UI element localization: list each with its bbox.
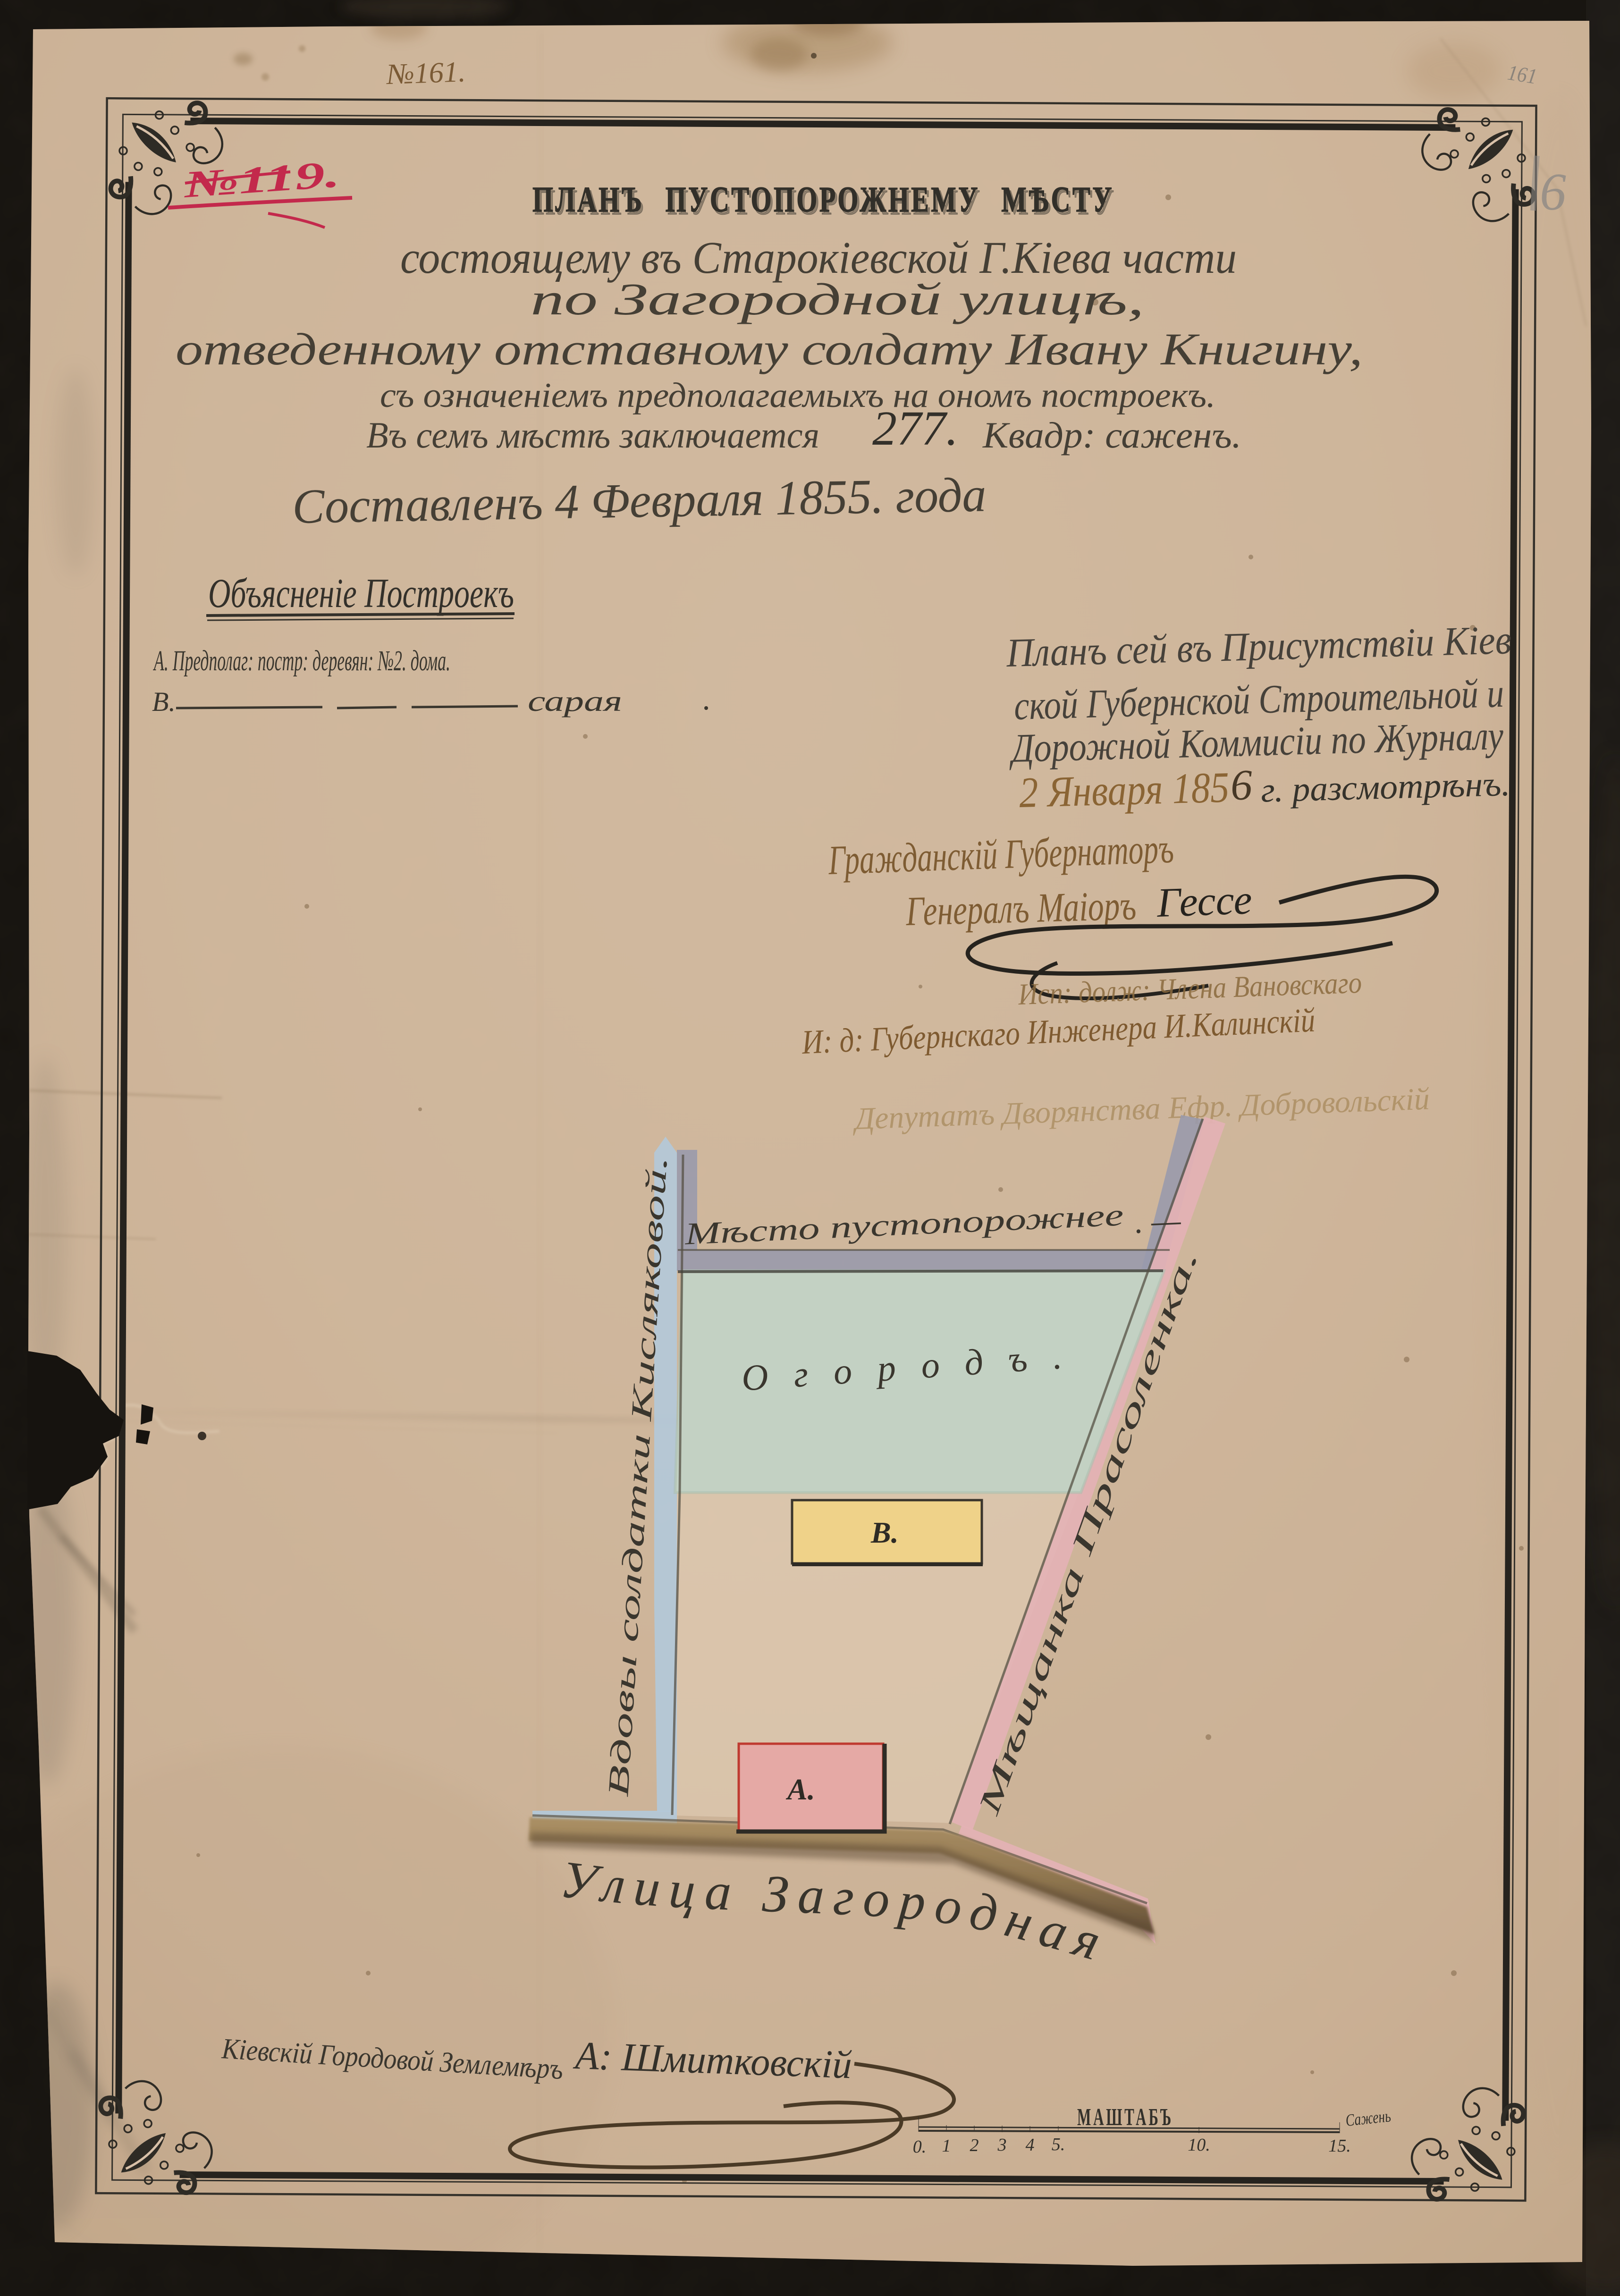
svg-text:1: 1 xyxy=(942,2136,951,2156)
svg-text:Квадр: саженъ.: Квадр: саженъ. xyxy=(982,414,1241,456)
svg-text:2 Января 185: 2 Января 185 xyxy=(1019,763,1230,817)
svg-text:МАШТАБЪ: МАШТАБЪ xyxy=(1077,2104,1173,2131)
svg-text:4: 4 xyxy=(1026,2135,1035,2155)
svg-text:Объясненіе Построекъ: Объясненіе Построекъ xyxy=(208,571,514,616)
svg-text:№161.: №161. xyxy=(385,56,466,91)
svg-text:0.: 0. xyxy=(913,2137,927,2157)
svg-text:6: 6 xyxy=(1540,163,1566,221)
svg-text:2: 2 xyxy=(970,2136,979,2155)
svg-text:10.: 10. xyxy=(1188,2135,1210,2155)
svg-text:Гессе: Гессе xyxy=(1156,877,1253,926)
svg-text:В.: В. xyxy=(870,1516,899,1549)
svg-text:Въ семъ мѣстѣ заключается: Въ семъ мѣстѣ заключается xyxy=(366,414,819,456)
svg-text:5.: 5. xyxy=(1052,2135,1065,2154)
svg-text:сарая: сарая xyxy=(528,685,622,717)
svg-text:съ означеніемъ предполагаемыхъ: съ означеніемъ предполагаемыхъ на ономъ … xyxy=(380,376,1215,415)
svg-text:В.: В. xyxy=(152,686,176,717)
svg-text:6: 6 xyxy=(1230,760,1253,809)
svg-text:г. разсмотрѣнъ.: г. разсмотрѣнъ. xyxy=(1260,765,1510,810)
svg-text:3: 3 xyxy=(997,2135,1007,2155)
svg-text:по Загородной улицѣ,: по Загородной улицѣ, xyxy=(531,274,1144,324)
svg-text:ПЛАНЪ ПУСТОПОРОЖНЕМУ МѢСТУ: ПЛАНЪ ПУСТОПОРОЖНЕМУ МѢСТУ xyxy=(532,180,1114,219)
svg-text:277.: 277. xyxy=(872,401,958,456)
svg-text:отведенному отставному солдату: отведенному отставному солдату Ивану Кни… xyxy=(176,324,1363,374)
svg-text:А. Предполаг: постр: деревян:: А. Предполаг: постр: деревян: №2. дома. xyxy=(153,645,450,677)
svg-text:А.: А. xyxy=(785,1773,815,1806)
svg-text:161: 161 xyxy=(1506,60,1538,89)
svg-text:. —: . — xyxy=(1134,1202,1181,1241)
svg-text:15.: 15. xyxy=(1328,2136,1351,2156)
